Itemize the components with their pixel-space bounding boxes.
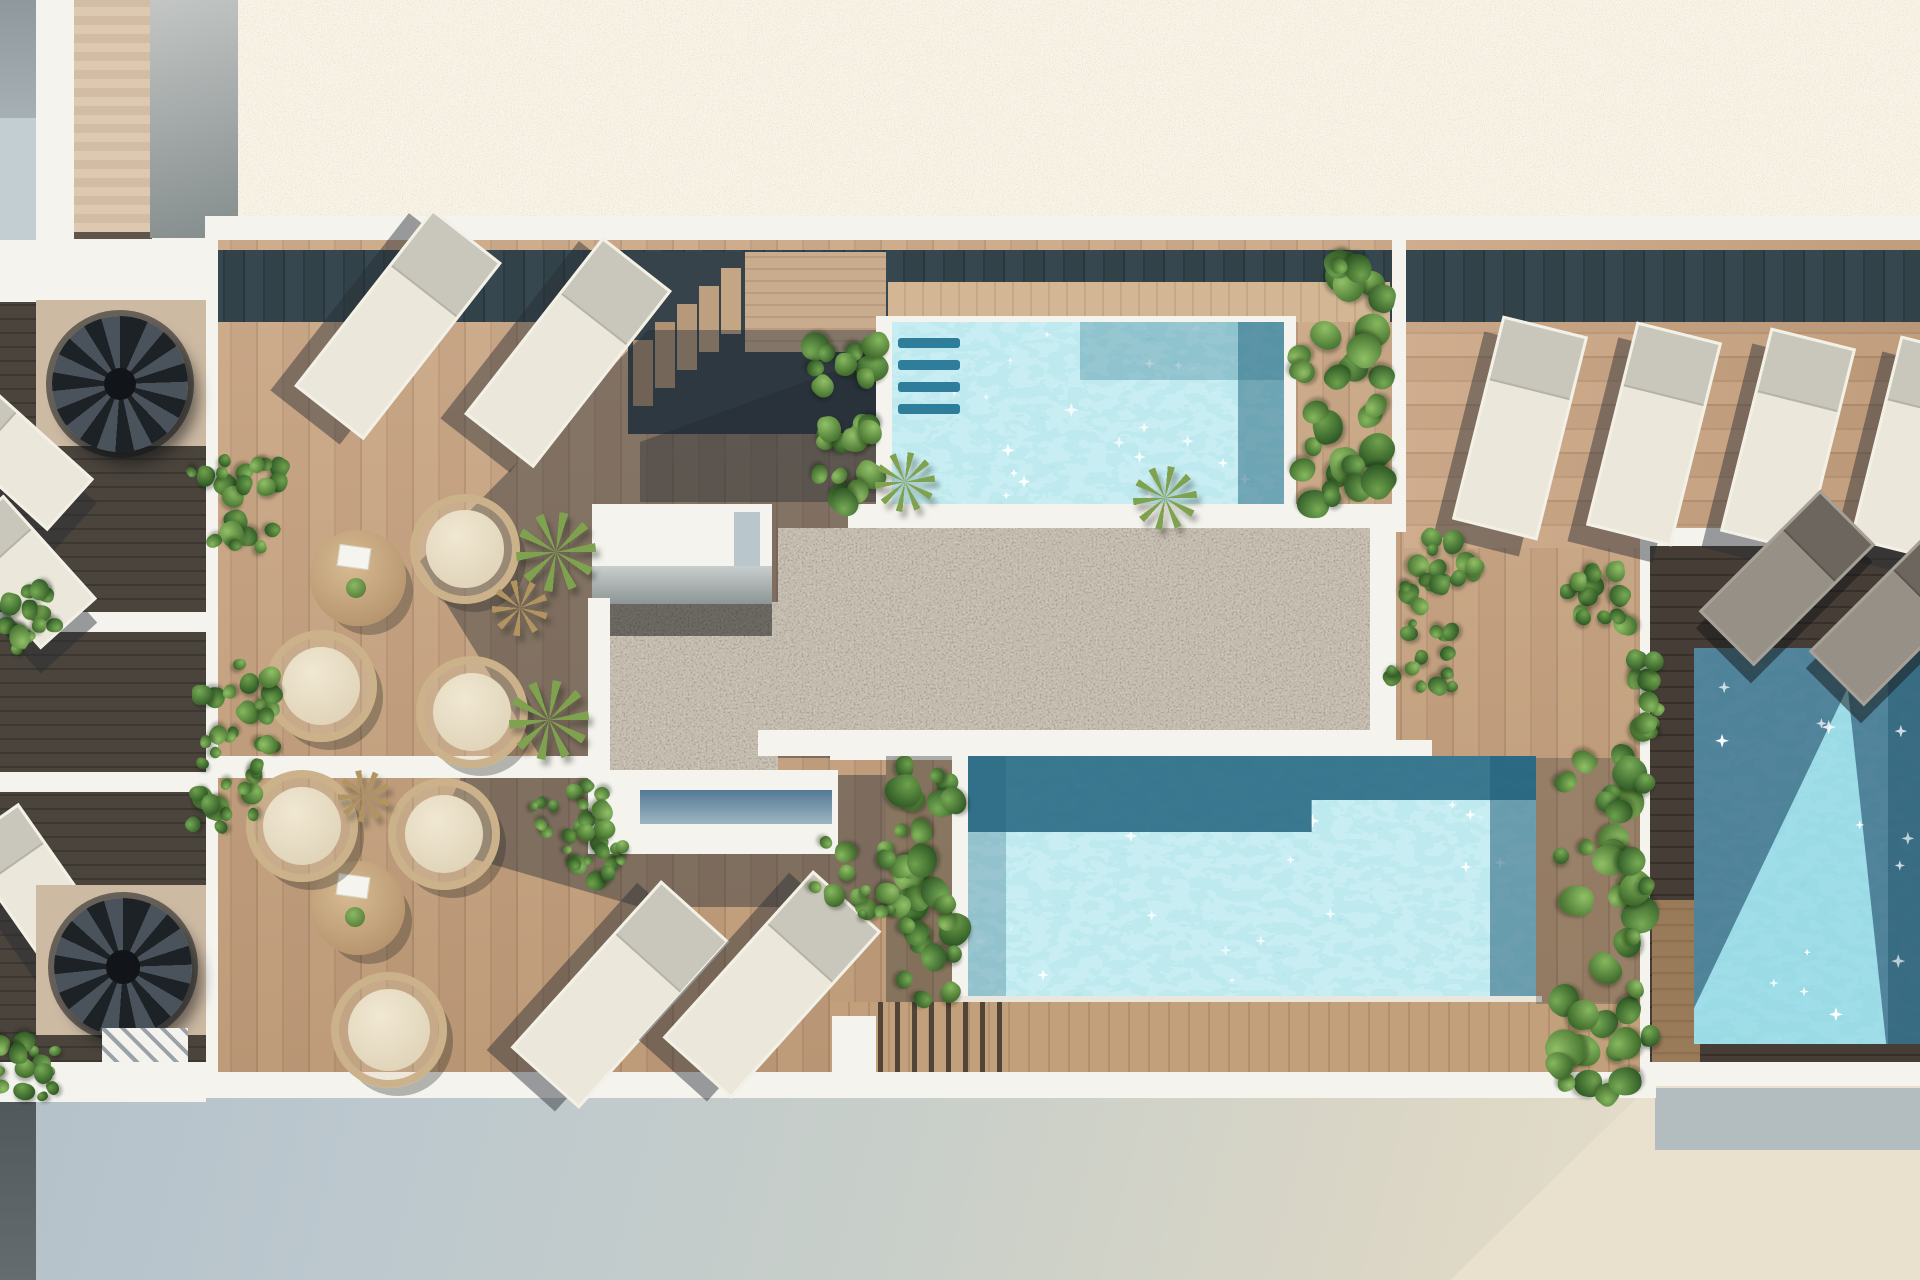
foliage-leaf (35, 1090, 49, 1102)
foliage-leaf (1638, 691, 1658, 712)
lounge-chair (388, 778, 500, 890)
chair-cushion (282, 647, 361, 726)
foliage-leaf (49, 1045, 62, 1056)
vine-planter (1624, 640, 1670, 750)
foliage-leaf (46, 618, 63, 632)
foliage-leaf (1550, 844, 1573, 866)
foliage-leaf (232, 657, 248, 671)
chair-cushion (426, 510, 503, 587)
gravel-roof (227, 0, 1920, 222)
foliage-leaf (547, 798, 562, 813)
foliage-leaf (574, 820, 598, 844)
balcony-divider-2 (0, 772, 206, 792)
pool-a-step (898, 382, 960, 392)
foliage-leaf (908, 816, 933, 845)
lounge-chair (331, 972, 447, 1088)
spiral-staircase-2 (54, 898, 192, 1036)
dried-grass-plant (492, 580, 548, 636)
pool-a-shade-top (1080, 322, 1284, 380)
boardwalk-end-wall (832, 1016, 876, 1074)
pebble-shadow (610, 602, 772, 636)
chair-cushion (433, 673, 512, 752)
foliage-leaf (246, 807, 261, 822)
foliage-leaf (1615, 995, 1641, 1025)
yucca-plant (1133, 466, 1197, 530)
dried-grass-plant (338, 770, 390, 822)
foliage-leaf (1605, 581, 1634, 610)
table-plant (346, 578, 366, 598)
foliage-leaf (836, 862, 857, 883)
roof-structure-parapet (592, 566, 772, 604)
foliage-leaf (1570, 572, 1586, 592)
bush (181, 741, 281, 841)
gray-wall-strip (150, 0, 238, 238)
foliage-leaf (1605, 560, 1626, 583)
foliage-leaf (875, 849, 897, 871)
coffee-table (310, 530, 406, 626)
pool-c-shade-right (1888, 648, 1920, 1044)
texture-overlay (227, 0, 1920, 222)
foliage-leaf (256, 477, 277, 497)
foliage-leaf (893, 968, 916, 992)
foliage-leaf (1324, 488, 1341, 506)
foliage-leaf (1552, 769, 1581, 796)
foliage-leaf (1441, 529, 1465, 555)
foliage-leaf (807, 878, 825, 896)
yucca-plant (516, 512, 596, 592)
foliage-leaf (1640, 1024, 1661, 1048)
boardwalk-steps (866, 1002, 1006, 1072)
foliage-leaf (0, 1079, 9, 1093)
foliage-leaf (182, 814, 203, 835)
foliage-leaf (195, 757, 210, 771)
pool-a-step (898, 338, 960, 348)
foliage-leaf (936, 979, 964, 1007)
foliage-leaf (9, 1042, 28, 1063)
foliage-leaf (817, 833, 834, 850)
foliage-leaf (253, 539, 268, 555)
rooftop-terrace-render (0, 0, 1920, 1280)
bush (1398, 524, 1488, 614)
foliage-leaf (834, 352, 858, 377)
foliage-leaf (1399, 625, 1419, 642)
step-board (721, 268, 741, 334)
spiral-staircase-1 (52, 316, 188, 452)
pebble-border-left (588, 598, 610, 796)
foliage-leaf (810, 464, 828, 484)
pool-c-water (1694, 648, 1920, 1044)
yucca-plant (509, 680, 589, 760)
book-on-table (336, 873, 371, 899)
balcony-wall (0, 240, 206, 302)
pool-a-step (898, 360, 960, 370)
bush (182, 450, 292, 560)
table-plant (345, 907, 365, 927)
lounger-cushion (0, 383, 16, 461)
foliage-leaf (877, 883, 900, 904)
lightwell-gap (640, 790, 832, 824)
texture-overlay (778, 528, 1372, 734)
foliage-leaf (11, 1080, 37, 1103)
foliage-leaf (1287, 455, 1317, 485)
lounger-cushion (0, 807, 44, 882)
foliage-leaf (9, 625, 30, 649)
bush (1378, 620, 1462, 704)
street-edge-top (0, 0, 36, 120)
foliage-leaf (562, 843, 574, 855)
chair-cushion (405, 795, 484, 874)
balcony-strip (0, 240, 206, 1102)
bush (561, 816, 637, 892)
foliage-leaf (22, 600, 38, 620)
chair-cushion (348, 989, 430, 1071)
foliage-leaf (1557, 883, 1596, 918)
foliage-leaf (834, 842, 858, 864)
pool-a-step (898, 404, 960, 414)
foliage-leaf (0, 1064, 7, 1077)
foliage-leaf (262, 519, 283, 540)
bush (1548, 560, 1638, 650)
foliage-leaf (591, 817, 618, 843)
yucca-plant (875, 452, 935, 512)
foliage-leaf (208, 745, 223, 760)
foliage-leaf (219, 776, 234, 792)
pool-b-shade-left-edge (968, 756, 1006, 1002)
bush (808, 832, 900, 924)
foliage-leaf (1404, 661, 1420, 676)
street-edge-tiles (0, 118, 36, 242)
pool-c-border-bottom (1650, 1062, 1920, 1086)
book-on-table (337, 544, 372, 570)
foliage-leaf (823, 883, 845, 907)
pebble-patio-main (778, 528, 1372, 734)
balcony-stairs (102, 1028, 188, 1064)
bush (0, 578, 66, 658)
wood-wall-strip (74, 0, 152, 239)
foliage-leaf (1305, 315, 1347, 356)
roof-structure-glass (734, 512, 760, 566)
pool-b-shade-right (1490, 756, 1536, 1002)
foliage-leaf (222, 683, 238, 700)
vine-planter (1542, 730, 1662, 1110)
foliage-leaf (566, 784, 583, 799)
bush (0, 1026, 68, 1110)
foliage-leaf (1437, 643, 1457, 663)
vine-planter (1286, 242, 1396, 524)
foliage-leaf (255, 662, 285, 692)
ground-shade-band (1655, 1088, 1920, 1150)
